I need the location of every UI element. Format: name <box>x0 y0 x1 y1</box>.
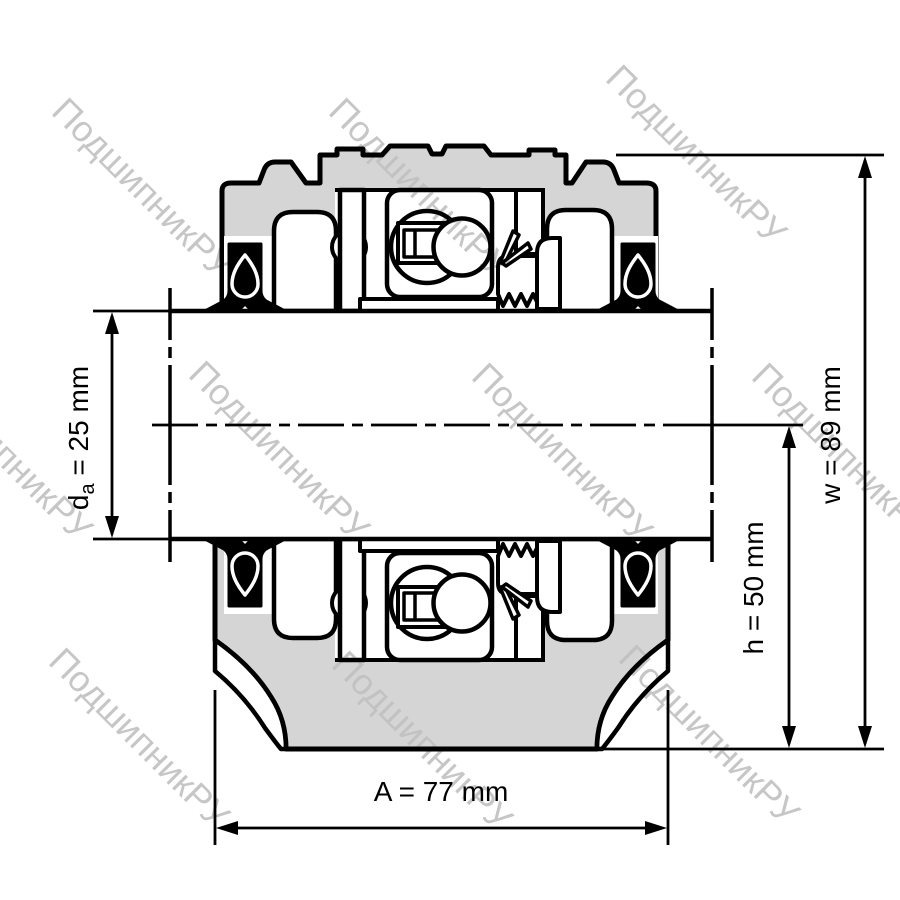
da-value: = 25 mm <box>63 366 94 483</box>
labyrinth-step <box>537 238 560 309</box>
h-label: h = 50 mm <box>738 521 769 654</box>
housing-cavity-left <box>274 212 336 311</box>
housing-rib-left <box>340 190 364 311</box>
technical-drawing-canvas: da = 25 mm h = 50 mm w = 89 mm A = 77 mm <box>0 0 900 900</box>
bearing-unit-drawing-page: da = 25 mm h = 50 mm w = 89 mm A = 77 mm <box>0 0 900 900</box>
